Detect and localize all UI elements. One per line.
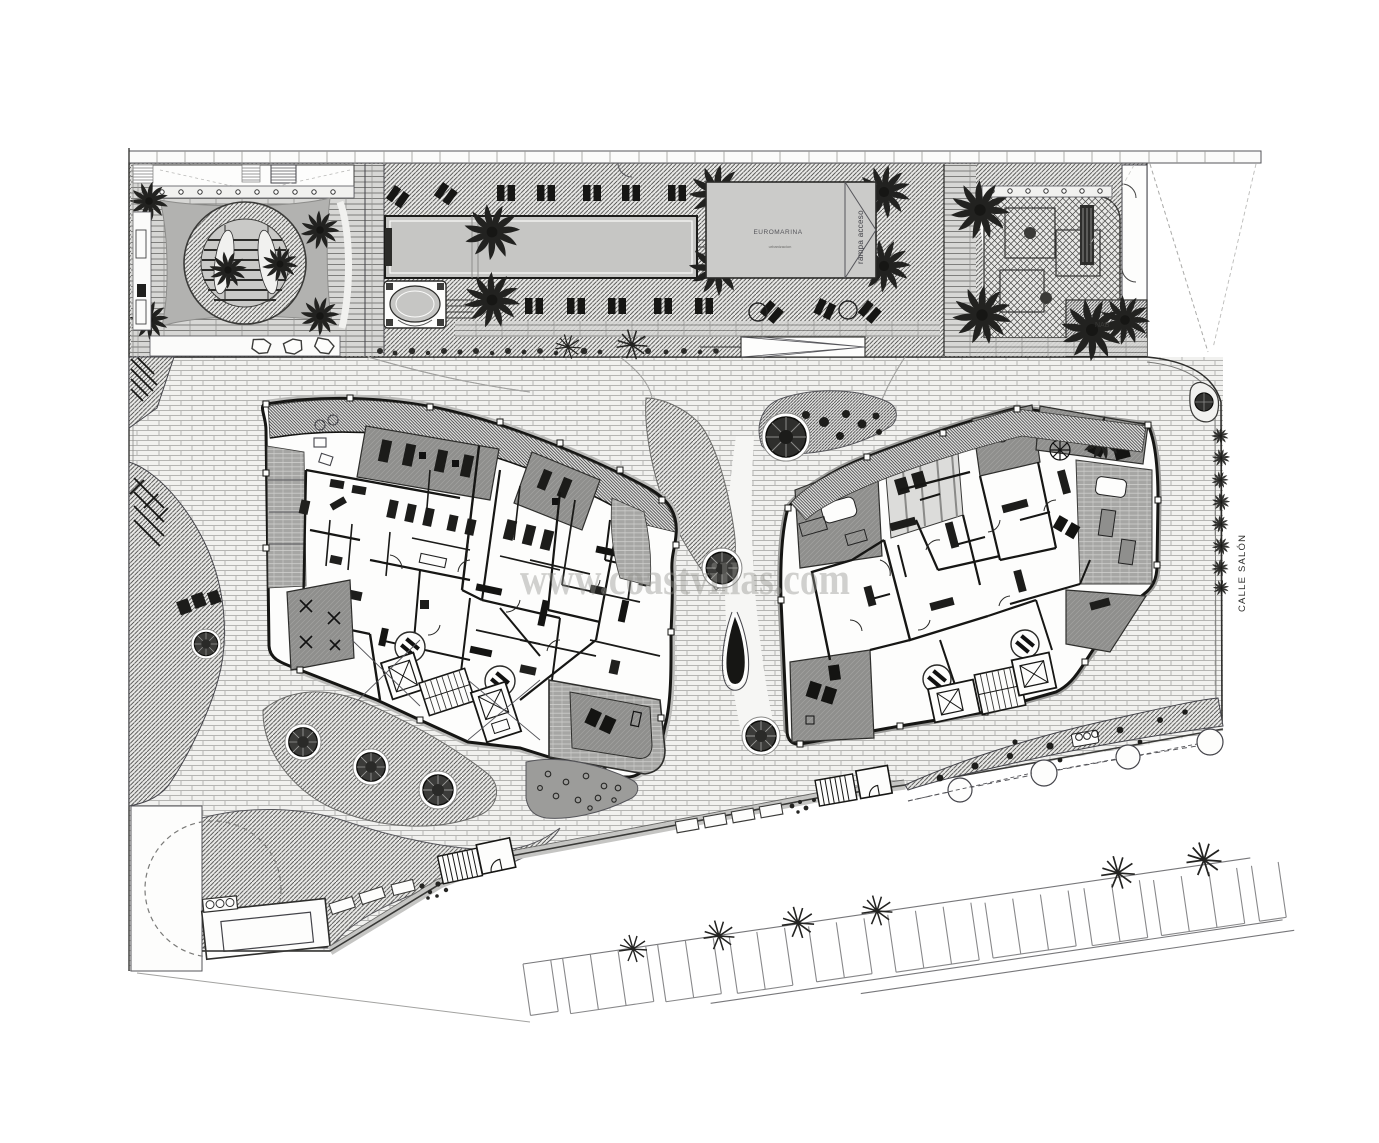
svg-text:EUROMARINA: EUROMARINA: [753, 229, 802, 236]
svg-text:urbanizacion: urbanizacion: [769, 244, 792, 249]
svg-text:CALLE SALÓN: CALLE SALÓN: [1237, 534, 1248, 612]
svg-text:rampa acceso: rampa acceso: [856, 210, 865, 264]
svg-text:www.coastvillas.com: www.coastvillas.com: [520, 553, 850, 604]
svg-text:NAB: NAB: [1095, 322, 1110, 329]
